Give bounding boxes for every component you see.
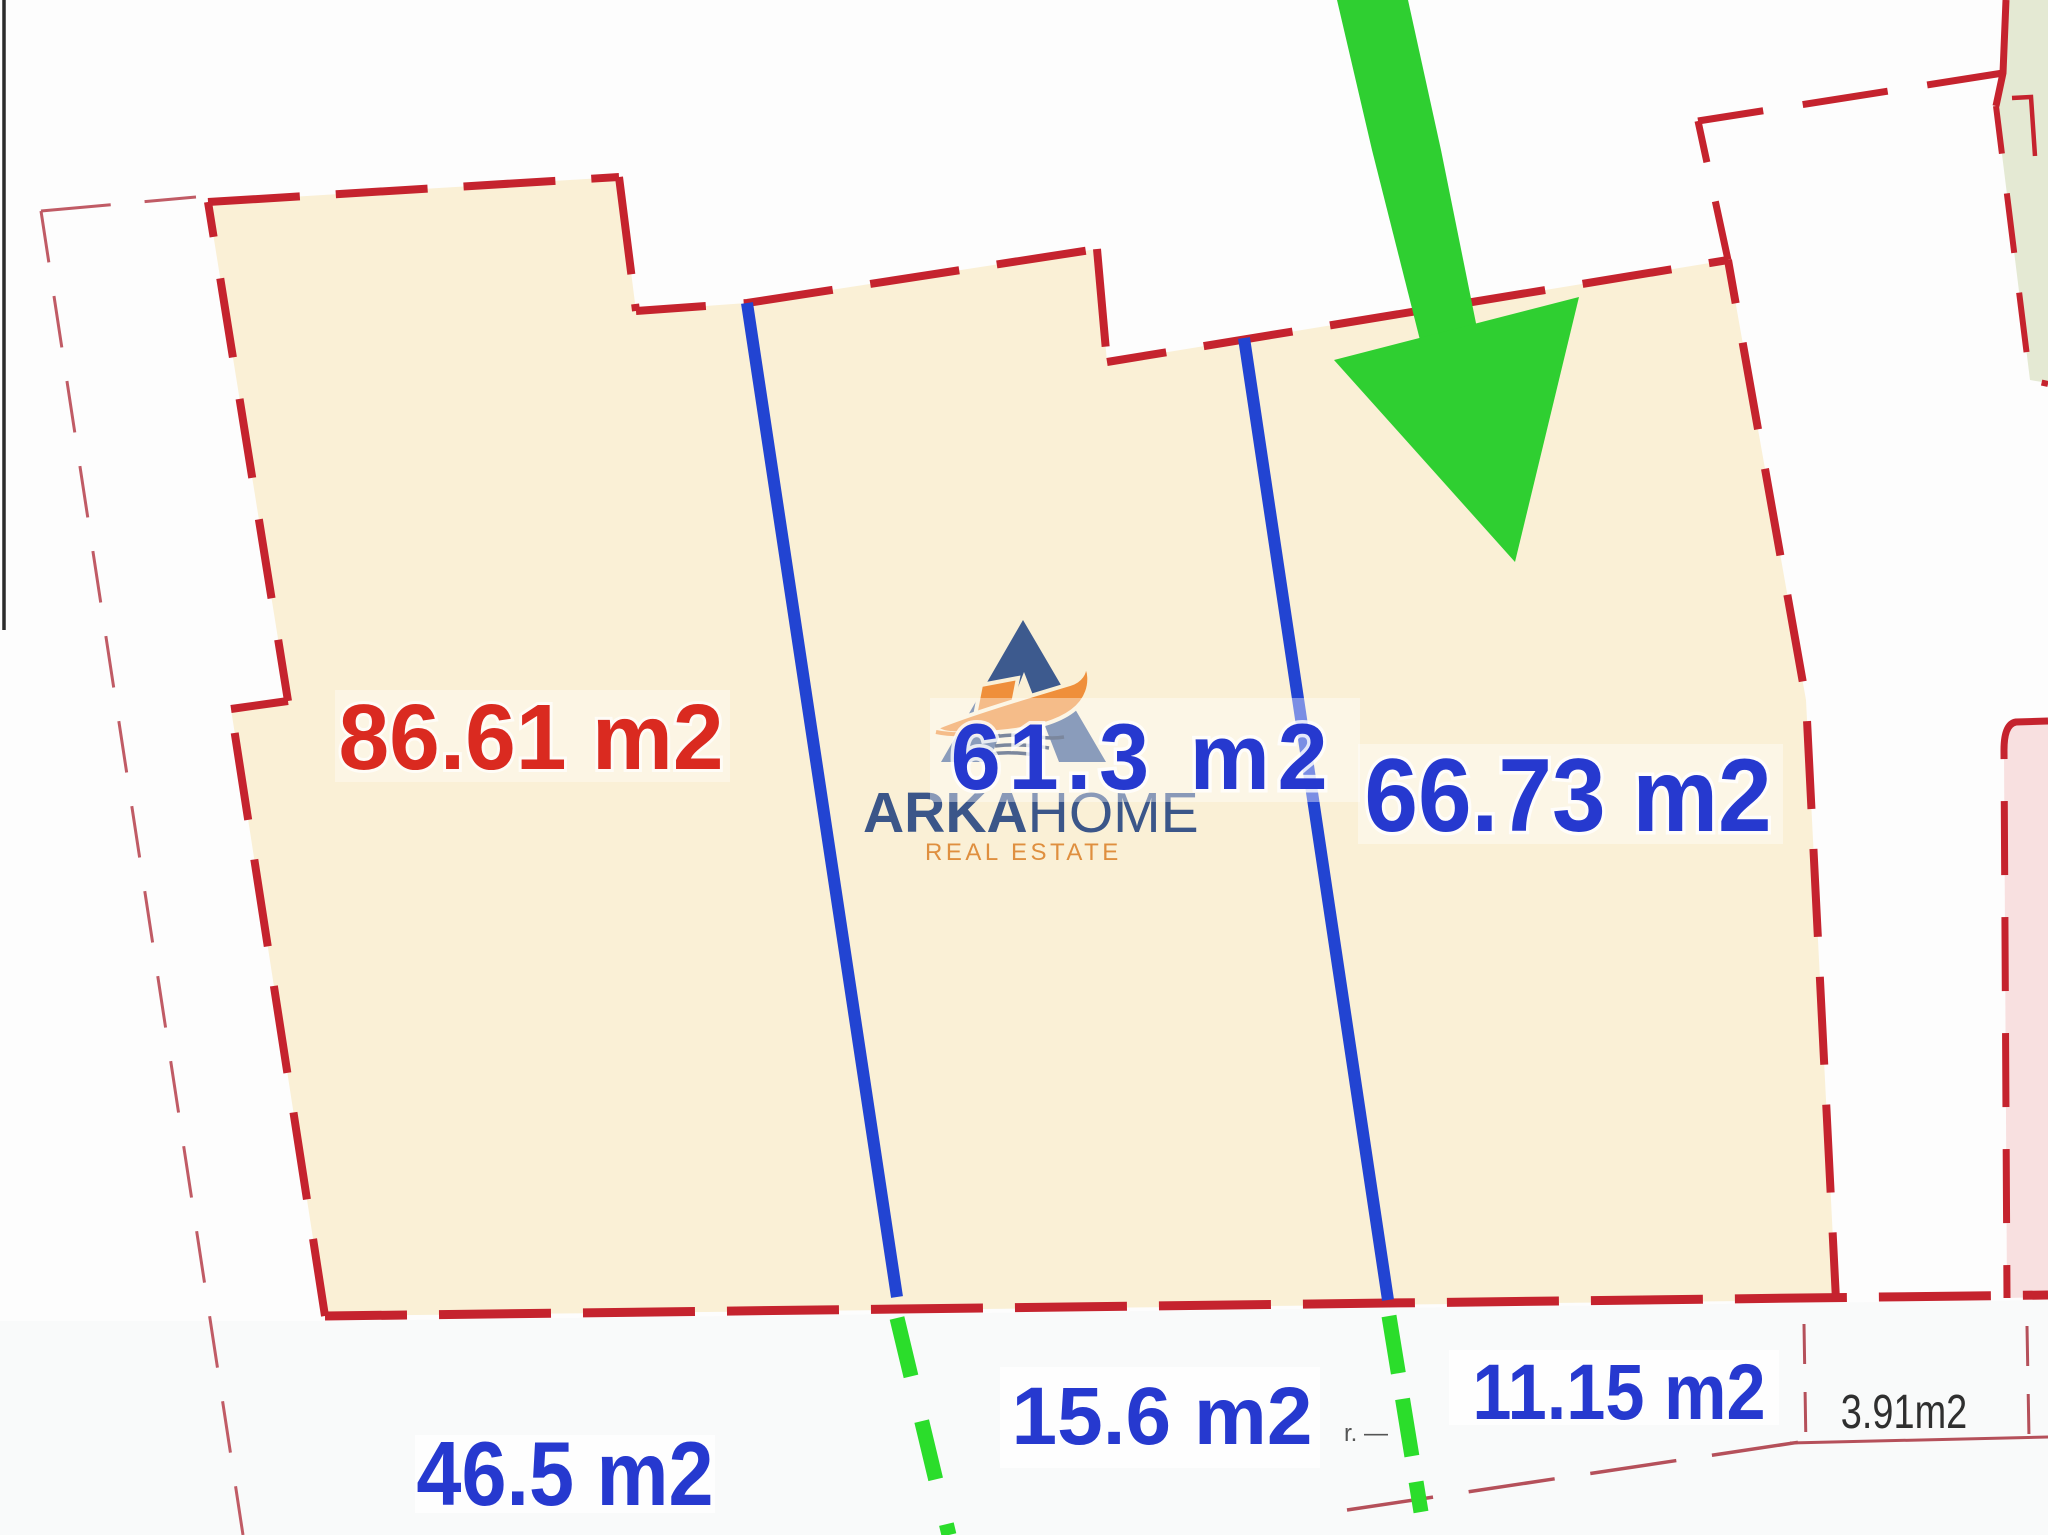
svg-text:15.6 m2: 15.6 m2	[1012, 1371, 1313, 1462]
svg-text:r. —: r. —	[1344, 1420, 1388, 1447]
svg-text:46.5 m2: 46.5 m2	[416, 1424, 713, 1525]
svg-text:66.73 m2: 66.73 m2	[1364, 738, 1771, 854]
svg-text:REAL ESTATE: REAL ESTATE	[925, 839, 1122, 866]
svg-text:61.3 m2: 61.3 m2	[951, 704, 1336, 809]
svg-text:3.91m2: 3.91m2	[1841, 1386, 1967, 1439]
svg-text:86.61 m2: 86.61 m2	[338, 685, 723, 789]
svg-text:11.15 m2: 11.15 m2	[1472, 1347, 1765, 1436]
